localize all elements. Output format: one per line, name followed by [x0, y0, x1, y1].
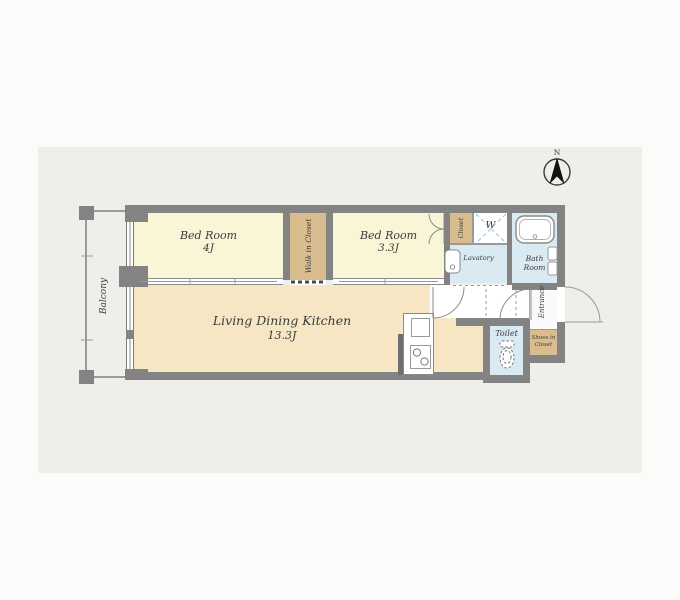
bedroom-4j-sliding-door — [134, 278, 283, 285]
wall — [444, 205, 450, 285]
wall — [283, 213, 290, 280]
lavatory-floor — [450, 245, 507, 283]
washer-space-label: W — [474, 220, 507, 231]
wall — [557, 322, 565, 355]
balcony-rail — [94, 210, 125, 212]
balcony-corner — [79, 206, 94, 220]
balcony-rail — [94, 376, 125, 378]
balcony-rail — [85, 208, 87, 384]
ldk-label: Living Dining Kitchen 13.3J — [134, 313, 430, 343]
kitchen-stove — [410, 345, 431, 369]
balcony-label: Balcony — [98, 266, 110, 326]
wall — [557, 205, 565, 287]
wall — [456, 318, 530, 326]
wall — [326, 213, 333, 280]
wall — [125, 205, 565, 213]
wall — [125, 372, 489, 380]
bedroom-4j-label: Bed Room 4J — [134, 229, 283, 255]
wall — [119, 266, 148, 287]
window — [126, 339, 134, 369]
floorplan-page: N Bed Room 4J Bed Room 3.3J Living Dinin… — [0, 0, 680, 600]
entrance-door-opening — [557, 287, 565, 322]
bathroom-label: Bath Room — [512, 254, 557, 272]
wall — [523, 318, 530, 383]
closet-label: Closet — [456, 208, 466, 248]
toilet-label: Toilet — [490, 329, 523, 338]
shoes-closet-label: Shoes in Closet — [530, 335, 557, 348]
wall — [125, 205, 148, 222]
window — [126, 222, 134, 266]
walk-in-closet-label: Walk in Closet — [302, 211, 314, 281]
compass-north-label: N — [547, 148, 567, 157]
window — [126, 287, 134, 330]
entrance-step-line — [529, 290, 530, 320]
wall — [126, 330, 134, 339]
bathroom-floor — [512, 213, 557, 283]
bedroom-3-3j-sliding-door — [333, 278, 444, 285]
entrance-label: Entrance — [537, 274, 547, 330]
wall — [483, 326, 490, 383]
bedroom-3-3j-label: Bed Room 3.3J — [333, 229, 444, 255]
ldk-floor-extension — [430, 318, 483, 372]
wall — [507, 213, 512, 285]
wall — [483, 375, 530, 383]
balcony-corner — [79, 370, 94, 384]
lavatory-label: Lavatory — [450, 254, 507, 262]
